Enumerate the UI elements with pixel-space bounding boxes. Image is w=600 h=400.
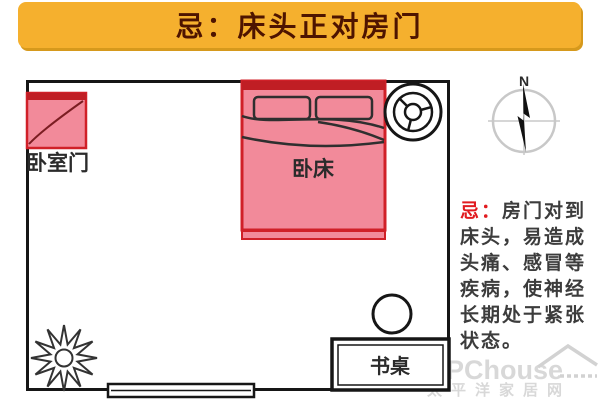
annotation-line: 疾病，使神经 [460,277,600,303]
annotation-text: 忌：房门对到 床头，易造成 头痛、感冒等 疾病，使神经 长期处于紧张 状态。 [460,199,600,355]
door-label: 卧室门 [26,151,89,175]
annotation-line: 忌：房门对到 [460,199,600,225]
bed-label: 卧床 [292,157,334,181]
bed-footboard [242,231,385,239]
ceiling-fan-icon [385,84,441,140]
desk-label: 书桌 [370,354,411,378]
compass-needle [518,84,531,152]
bedroom-door [27,93,86,148]
desk: 书桌 [332,339,449,390]
compass: N [488,73,560,155]
annotation-prefix: 忌： [460,201,502,222]
annotation-first-line: 房门对到 [502,201,586,222]
fengshui-infographic: 忌：床头正对房门 PChouse 太平洋家居网 卧室门 [0,0,600,400]
annotation-line: 状态。 [460,329,600,355]
compass-north-label: N [519,73,529,89]
annotation-line: 长期处于紧张 [460,303,600,329]
annotation-line: 床头，易造成 [460,225,600,251]
annotation-line: 头痛、感冒等 [460,251,600,277]
window [108,384,254,397]
stool [373,295,411,333]
bed-headboard [242,81,385,90]
plant-icon [31,325,97,391]
bed: 卧床 [242,81,385,239]
